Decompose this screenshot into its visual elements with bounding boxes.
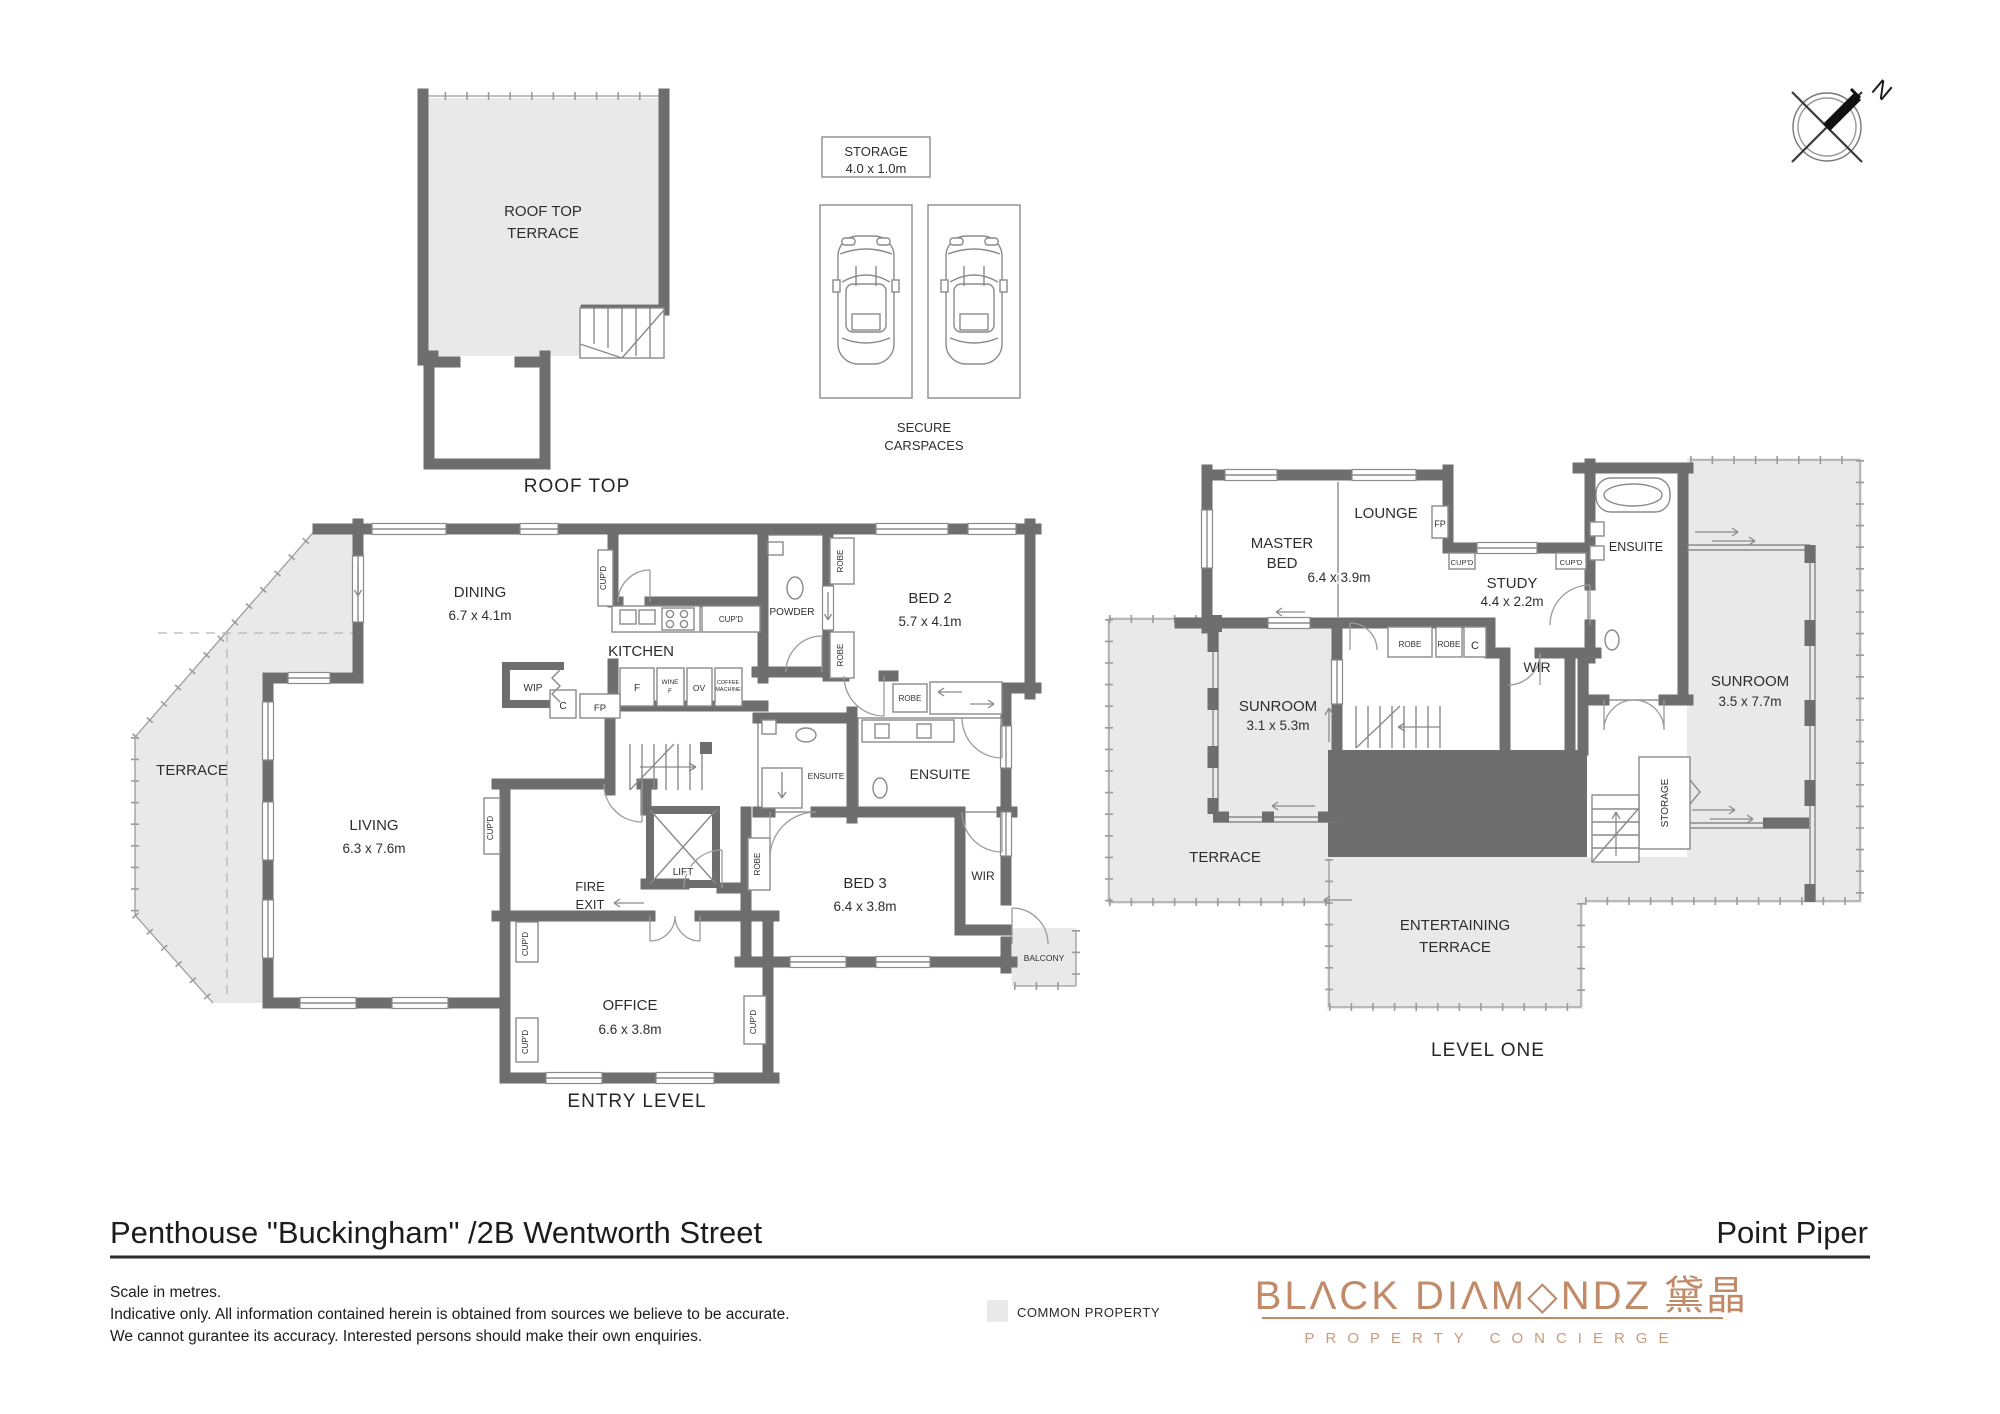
common-property-swatch [987,1300,1008,1322]
compass-icon: N [1792,75,1897,162]
sunroom-a-label: SUNROOM [1239,698,1317,715]
roof-stairs [580,308,664,358]
lounge-label: LOUNGE [1354,505,1417,522]
l1-storage-label: STORAGE [1660,778,1671,827]
l1-robe-label-1: ROBE [1399,640,1422,649]
l1-ensuite-label: ENSUITE [1609,540,1663,554]
bed2-dims: 5.7 x 4.1m [898,614,961,629]
floorplan-page: ROOF TOP TERRACE ROOF TOP STORAGE 4.0 x … [0,0,2000,1414]
common-property-label: COMMON PROPERTY [1017,1305,1160,1320]
office-cupd-label-1: CUP'D [521,932,530,956]
floorplan-drawing: ROOF TOP TERRACE ROOF TOP STORAGE 4.0 x … [0,0,2000,1414]
bed2-label: BED 2 [908,590,951,607]
entertaining-terrace-label-line1: ENTERTAINING [1400,917,1510,934]
wine-fridge-label-line2: F [668,688,672,695]
l1-fp-label: FP [1434,519,1446,529]
brand-logo: BLΛCK DIΛM◇NDZ 黛晶 PROPERTY CONCIERGE [1255,1274,1748,1347]
l1-robe-label-2: ROBE [1438,640,1461,649]
entry-stairs [630,742,712,790]
footer-note-3: We cannot gurantee its accuracy. Interes… [110,1328,702,1345]
office-dims: 6.6 x 3.8m [598,1022,661,1037]
bed3-dims: 6.4 x 3.8m [833,899,896,914]
entry-fp-label: FP [594,703,606,714]
brand-tagline: PROPERTY CONCIERGE [1305,1330,1680,1347]
master-bed-label-line1: MASTER [1251,535,1314,552]
powder-label: POWDER [770,607,815,618]
footer-note-1: Scale in metres. [110,1284,221,1301]
dining-cupd-label: CUP'D [599,566,608,590]
entry-c-label: C [559,701,566,712]
secure-carspaces-label-line2: CARSPACES [884,438,964,453]
brand-wordmark: BLΛCK DIΛM◇NDZ [1255,1274,1652,1318]
level-one-plan-label: LEVEL ONE [1431,1040,1545,1061]
roof-terrace-label-line2: TERRACE [507,225,579,242]
roof-top-plan-label: ROOF TOP [524,476,631,497]
sunroom-b-dims: 3.5 x 7.7m [1718,694,1781,709]
brand-cjk-text: 黛晶 [1664,1274,1748,1318]
dining-dims: 6.7 x 4.1m [448,608,511,623]
living-dims: 6.3 x 7.6m [342,841,405,856]
l1-wir-label: WIR [1523,659,1550,675]
kitchen-cupd-label: CUP'D [719,615,743,624]
bed3-ensuite-label: ENSUITE [808,771,845,781]
l1-void-block [1328,750,1587,857]
fridge-label: F [634,683,640,694]
wip-label: WIP [524,683,543,694]
entry-level-plan-label: ENTRY LEVEL [567,1091,706,1112]
bed2-ensuite-label: ENSUITE [910,766,971,782]
bed3-label: BED 3 [843,875,886,892]
bed3-robe-label: ROBE [753,853,762,876]
office-cupd-label-2: CUP'D [521,1030,530,1054]
l1-cupd-label-1: CUP'D [1451,558,1474,567]
l1-stairs [1592,795,1639,862]
master-bed-label-line2: BED [1267,555,1298,572]
l1-c-label: C [1471,640,1479,652]
entry-wir-label: WIR [971,869,995,883]
roof-access-box [429,356,545,464]
l1-cupd-label-2: CUP'D [1560,558,1583,567]
l1-terrace-label: TERRACE [1189,849,1261,866]
entry-level-plan: DINING 6.7 x 4.1m KITCHEN LIVING 6.3 x 7… [135,524,1076,1113]
oven-label: OV [693,683,706,693]
roof-terrace-label-line1: ROOF TOP [504,203,582,220]
parking-area: STORAGE 4.0 x 1.0m SECURE CARSPACES [820,137,1020,453]
storage-box-dims: 4.0 x 1.0m [846,161,907,176]
coffee-machine-label-line1: COFFEE [717,680,740,686]
footer-note-2: Indicative only. All information contain… [110,1306,790,1323]
bed2-robe-label-3: ROBE [899,694,922,703]
roof-top-plan: ROOF TOP TERRACE ROOF TOP [423,94,664,497]
level-one-plan: MASTER BED 6.4 x 3.9m LOUNGE FP STUDY 4.… [1107,458,1862,1061]
bed2-robe-label-2: ROBE [836,644,845,667]
balcony-label: BALCONY [1024,953,1065,963]
kitchen-label: KITCHEN [608,643,674,660]
office-cupd-label-3: CUP'D [749,1010,758,1034]
entertaining-terrace-label-line2: TERRACE [1419,939,1491,956]
wine-fridge-label-line1: WINE [662,679,680,686]
lift-label: LIFT [673,867,694,878]
living-label: LIVING [349,817,398,834]
sunroom-a-dims: 3.1 x 5.3m [1246,718,1309,733]
fire-exit-label-line1: FIRE [575,879,605,894]
footer: Penthouse "Buckingham" /2B Wentworth Str… [110,1215,1870,1347]
suburb-label: Point Piper [1716,1215,1868,1250]
entry-terrace-label: TERRACE [156,762,228,779]
living-cupd-label: CUP'D [486,816,495,840]
storage-box-label: STORAGE [844,144,908,159]
compass-north-label: N [1866,75,1897,107]
secure-carspaces-label-line1: SECURE [897,420,952,435]
bed2-robe-label-1: ROBE [836,550,845,573]
coffee-machine-label-line2: MACHINE [715,687,741,693]
study-label: STUDY [1487,575,1538,592]
fire-exit-label-line2: EXIT [576,897,605,912]
page-title: Penthouse "Buckingham" /2B Wentworth Str… [110,1215,763,1250]
master-bed-dims: 6.4 x 3.9m [1307,570,1370,585]
sunroom-b-label: SUNROOM [1711,673,1789,690]
office-label: OFFICE [603,997,658,1014]
study-dims: 4.4 x 2.2m [1480,594,1543,609]
dining-label: DINING [454,584,507,601]
